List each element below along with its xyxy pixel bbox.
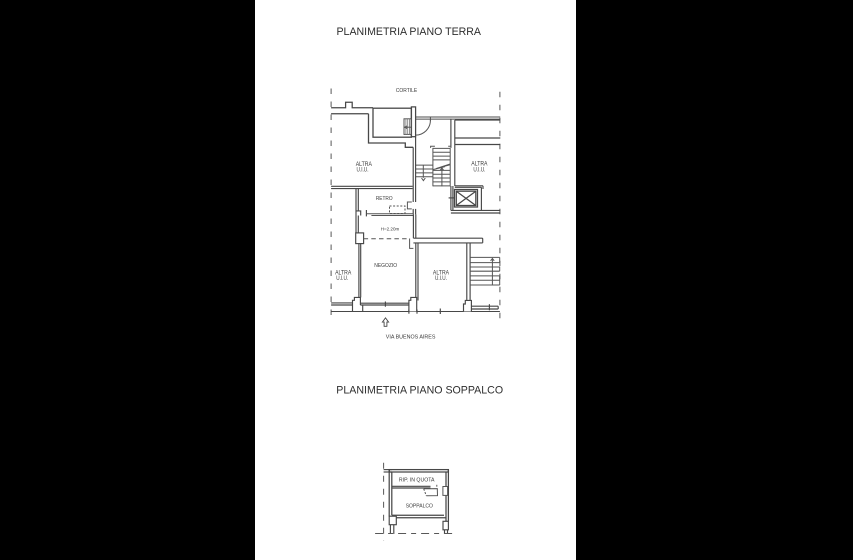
svg-text:VIA BUENOS AIRES: VIA BUENOS AIRES	[386, 334, 436, 340]
svg-text:RIP. IN QUOTA: RIP. IN QUOTA	[399, 477, 435, 483]
svg-text:U.I.U.: U.I.U.	[473, 167, 485, 173]
svg-text:SOPPALCO: SOPPALCO	[406, 504, 433, 510]
svg-text:H=2.20m: H=2.20m	[381, 227, 400, 233]
svg-text:PLANIMETRIA PIANO SOPPALCO: PLANIMETRIA PIANO SOPPALCO	[336, 385, 503, 397]
svg-text:U.I.U.: U.I.U.	[336, 276, 348, 282]
svg-text:NEGOZIO: NEGOZIO	[374, 263, 397, 269]
svg-text:U.I.U.: U.I.U.	[357, 168, 369, 174]
svg-text:CORTILE: CORTILE	[396, 88, 418, 94]
svg-text:U.I.U.: U.I.U.	[435, 276, 447, 282]
svg-text:RETRO: RETRO	[376, 196, 393, 202]
svg-text:PLANIMETRIA PIANO TERRA: PLANIMETRIA PIANO TERRA	[337, 26, 482, 38]
